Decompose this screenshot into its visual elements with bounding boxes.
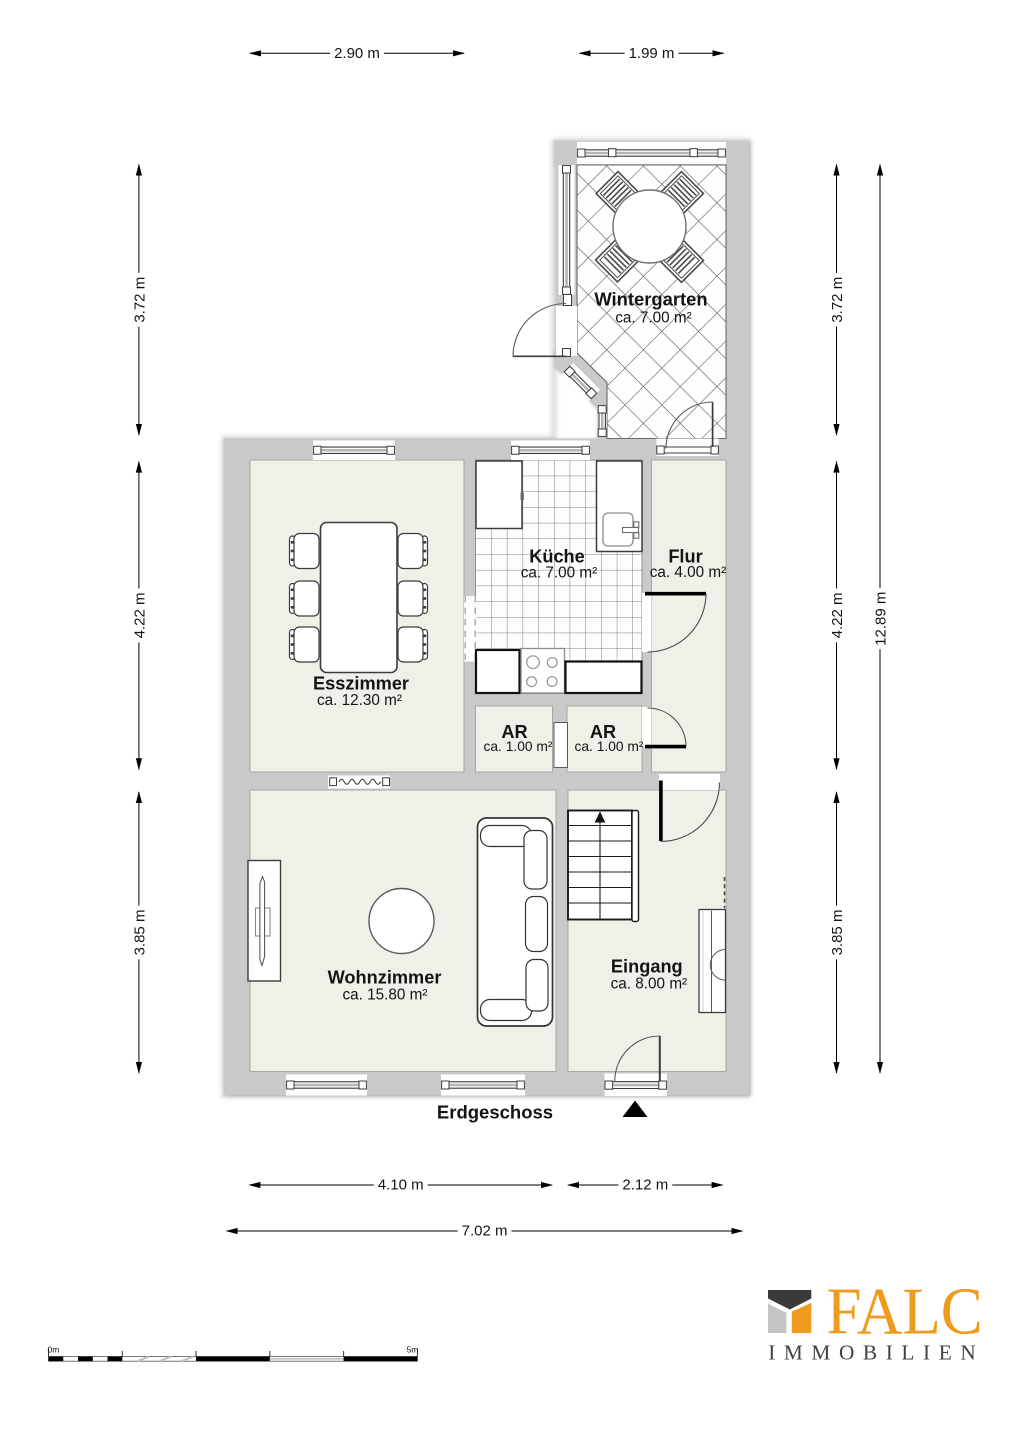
svg-text:IMMOBILIEN: IMMOBILIEN: [768, 1341, 984, 1365]
svg-text:ca. 1.00 m²: ca. 1.00 m²: [483, 739, 552, 754]
svg-text:ca. 7.00 m²: ca. 7.00 m²: [521, 565, 598, 582]
svg-text:ca. 4.00 m²: ca. 4.00 m²: [650, 564, 727, 581]
svg-text:Wohnzimmer: Wohnzimmer: [328, 968, 442, 988]
svg-text:1.99 m: 1.99 m: [629, 45, 675, 62]
svg-text:4.10 m: 4.10 m: [378, 1177, 424, 1194]
svg-text:5m: 5m: [407, 1345, 419, 1355]
svg-text:7.02 m: 7.02 m: [462, 1223, 508, 1240]
svg-text:ca. 15.80 m²: ca. 15.80 m²: [342, 987, 427, 1004]
svg-text:3.72 m: 3.72 m: [829, 277, 846, 323]
svg-text:Esszimmer: Esszimmer: [313, 674, 409, 694]
svg-text:ca. 7.00 m²: ca. 7.00 m²: [615, 310, 692, 327]
svg-text:4.22 m: 4.22 m: [829, 593, 846, 639]
svg-text:3.85 m: 3.85 m: [131, 910, 148, 956]
svg-text:4.22 m: 4.22 m: [131, 593, 148, 639]
svg-text:FALC: FALC: [827, 1275, 983, 1349]
svg-text:Wintergarten: Wintergarten: [594, 289, 707, 310]
svg-text:Eingang: Eingang: [611, 957, 683, 977]
svg-text:3.85 m: 3.85 m: [829, 910, 846, 956]
svg-text:Küche: Küche: [529, 547, 585, 567]
svg-text:2.12 m: 2.12 m: [622, 1177, 668, 1194]
svg-text:12.89 m: 12.89 m: [873, 592, 890, 646]
svg-text:2.90 m: 2.90 m: [334, 45, 380, 62]
svg-text:ca. 8.00 m²: ca. 8.00 m²: [611, 976, 688, 993]
svg-text:ca. 12.30 m²: ca. 12.30 m²: [317, 692, 402, 709]
svg-text:3.72 m: 3.72 m: [131, 277, 148, 323]
svg-text:Erdgeschoss: Erdgeschoss: [437, 1102, 553, 1123]
svg-text:0m: 0m: [48, 1345, 60, 1355]
svg-text:ca. 1.00 m²: ca. 1.00 m²: [574, 739, 643, 754]
